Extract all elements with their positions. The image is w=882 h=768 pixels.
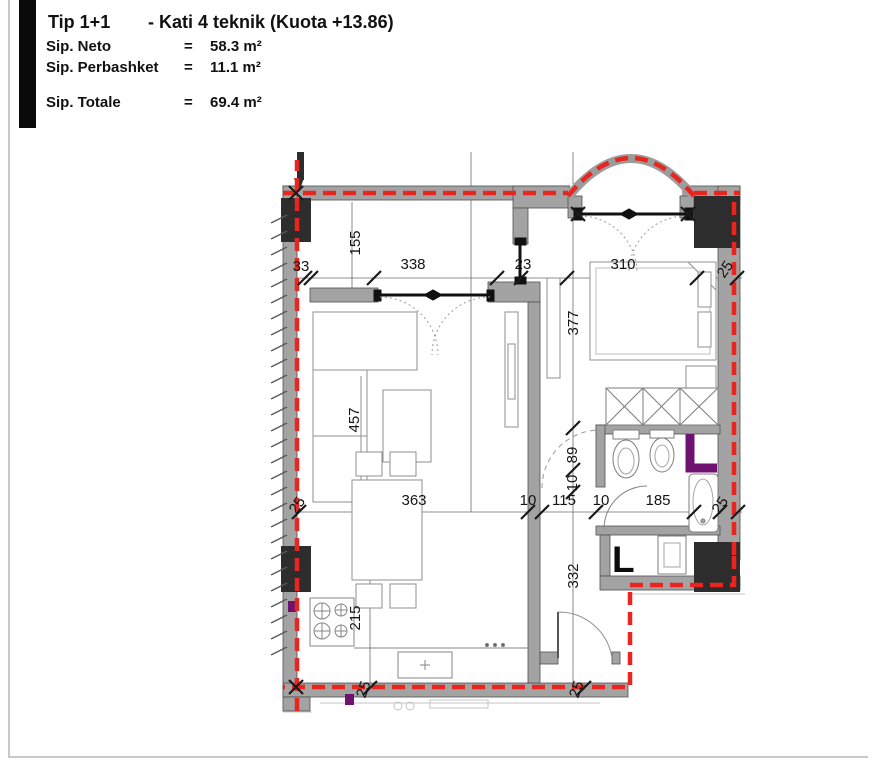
dim-label: 310	[610, 256, 635, 273]
floor-plan-svg: 1553333823310253774578910253631011510185…	[0, 0, 882, 768]
dim-label: 215	[347, 605, 364, 630]
dim-label: 89	[564, 447, 581, 464]
toilet-tank	[613, 430, 639, 439]
dim-label: 155	[347, 230, 364, 255]
dim-label: 10	[564, 475, 581, 492]
bay-opening	[570, 184, 682, 201]
dim-label: 10	[520, 492, 537, 509]
chair	[390, 584, 416, 608]
kitchen-fixtures	[310, 598, 528, 678]
living-room-furniture	[313, 312, 518, 608]
dim-label: 332	[565, 563, 582, 588]
pillow	[698, 272, 711, 307]
wardrobe	[606, 388, 718, 425]
laundry-room-label: L	[612, 539, 635, 580]
dim-label: 115	[552, 492, 576, 509]
dim-label: 33	[293, 258, 310, 275]
chair	[390, 452, 416, 476]
dim-label: 363	[401, 492, 426, 509]
dim-label: 23	[515, 256, 532, 273]
pillow	[698, 312, 711, 347]
chair	[356, 452, 382, 476]
floor-plan-page: Tip 1+1- Kati 4 teknik (Kuota +13.86) Si…	[0, 0, 882, 768]
coffee-table	[383, 390, 431, 462]
chair	[356, 584, 382, 608]
dim-label: 185	[645, 492, 670, 509]
dim-label: 457	[346, 407, 363, 432]
dim-label: 338	[400, 256, 425, 273]
dim-label: 10	[593, 492, 610, 509]
nightstand	[686, 366, 716, 388]
dim-label: 377	[565, 310, 582, 335]
dresser	[547, 278, 560, 378]
